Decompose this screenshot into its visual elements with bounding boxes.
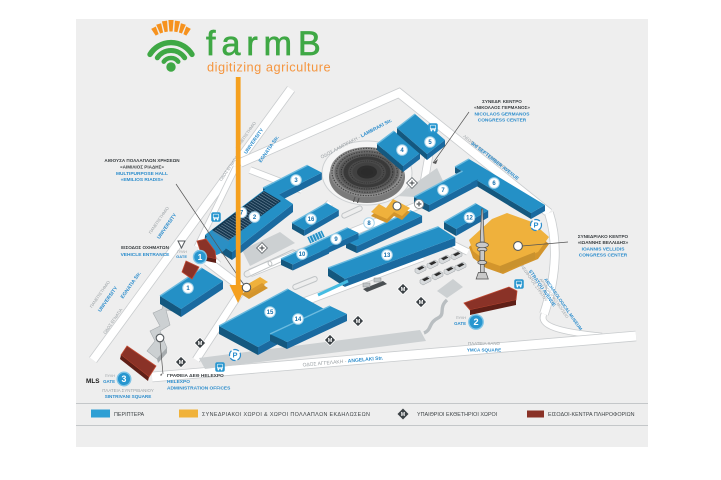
svg-text:15: 15 (267, 310, 274, 316)
svg-text:ADMINISTRATION OFFICES: ADMINISTRATION OFFICES (167, 385, 231, 391)
svg-text:ΠΛΑΤΕΙΑ ΧΑΝΘ: ΠΛΑΤΕΙΑ ΧΑΝΘ (468, 341, 500, 346)
svg-text:ΑΙΘΟΥΣΑ ΠΟΛΛΑΠΛΩΝ ΧΡΗΣΕΩΝ: ΑΙΘΟΥΣΑ ΠΟΛΛΑΠΛΩΝ ΧΡΗΣΕΩΝ (104, 158, 180, 163)
svg-text:12: 12 (466, 216, 473, 222)
svg-text:16: 16 (308, 217, 315, 223)
svg-text:ΠΥΛΗ: ΠΥΛΗ (105, 374, 116, 378)
svg-text:ΣΥΝΕΔΡΙΑΚΟ ΚΕΝΤΡΟ: ΣΥΝΕΔΡΙΑΚΟ ΚΕΝΤΡΟ (578, 234, 629, 239)
svg-text:14: 14 (295, 317, 302, 323)
svg-text:ΓΡΑΦΕΙΑ ΔΕΘ HELEXPO: ΓΡΑΦΕΙΑ ΔΕΘ HELEXPO (167, 373, 224, 379)
svg-text:ΕΙΣΟΔΟΣ ΟΧΗΜΑΤΩΝ: ΕΙΣΟΔΟΣ ΟΧΗΜΑΤΩΝ (121, 245, 169, 250)
svg-text:M: M (328, 338, 333, 344)
svg-text:«ΝΙΚΟΛΑΟΣ ΓΕΡΜΑΝΟΣ»: «ΝΙΚΟΛΑΟΣ ΓΕΡΜΑΝΟΣ» (474, 105, 530, 110)
svg-text:P: P (232, 351, 237, 360)
svg-text:NICOLAOS GERMANOS: NICOLAOS GERMANOS (475, 111, 531, 117)
svg-text:MULTIPURPOSE HALL: MULTIPURPOSE HALL (116, 171, 168, 177)
svg-text:CONGRESS CENTER: CONGRESS CENTER (579, 253, 628, 259)
svg-text:GATE: GATE (454, 321, 466, 326)
svg-text:ΠΛΑΤΕΙΑ ΣΥΝΤΡΙΒΑΝΙΟΥ: ΠΛΑΤΕΙΑ ΣΥΝΤΡΙΒΑΝΙΟΥ (102, 388, 154, 393)
svg-text:2: 2 (473, 317, 478, 327)
svg-text:«ΑΙΜΙΛΙΟΣ ΡΙΑΔΗΣ»: «ΑΙΜΙΛΙΟΣ ΡΙΑΔΗΣ» (120, 164, 164, 169)
svg-text:farmB: farmB (206, 25, 327, 63)
svg-text:13: 13 (384, 253, 391, 259)
svg-text:ΠΕΡΙΠΤΕΡΑ: ΠΕΡΙΠΤΕΡΑ (114, 412, 145, 418)
svg-text:P: P (533, 221, 538, 230)
svg-text:CONGRESS CENTER: CONGRESS CENTER (478, 118, 527, 124)
svg-text:M: M (419, 300, 424, 306)
svg-text:M: M (179, 360, 184, 366)
svg-text:GATE: GATE (176, 254, 187, 259)
svg-text:3: 3 (122, 374, 127, 384)
svg-text:ΙΟΑΝΝΙS VELLIDIS: ΙΟΑΝΝΙS VELLIDIS (582, 246, 626, 252)
svg-text:VEHICLE ENTRANCE: VEHICLE ENTRANCE (121, 252, 171, 258)
svg-text:ΠΥΛΗ: ΠΥΛΗ (456, 316, 467, 320)
svg-text:10: 10 (299, 252, 306, 258)
svg-text:M: M (401, 412, 405, 418)
svg-text:HELEXPO: HELEXPO (167, 379, 190, 385)
svg-text:ΣΥΝΕΔΡΙΑΚΟΙ ΧΩΡΟΙ & ΧΩΡΟΙ ΠΟΛΛ: ΣΥΝΕΔΡΙΑΚΟΙ ΧΩΡΟΙ & ΧΩΡΟΙ ΠΟΛΛΑΠΛΩΝ ΕΚΔΗ… (202, 412, 370, 418)
svg-text:digitizing agriculture: digitizing agriculture (207, 60, 331, 75)
svg-text:ΥΠΑΙΘΡΙΟΙ ΕΚΘΕΤΗΡΙΟΙ ΧΩΡΟΙ: ΥΠΑΙΘΡΙΟΙ ΕΚΘΕΤΗΡΙΟΙ ΧΩΡΟΙ (417, 412, 497, 418)
svg-text:«ΙΩΑΝΝΗΣ ΒΕΛΛΙΔΗΣ»: «ΙΩΑΝΝΗΣ ΒΕΛΛΙΔΗΣ» (578, 240, 629, 245)
svg-text:«EMILIOS RIADIS»: «EMILIOS RIADIS» (121, 177, 164, 183)
svg-text:MLS: MLS (86, 378, 100, 385)
svg-text:M: M (401, 287, 406, 293)
svg-text:ΕΙΣΟΔΟΙ-ΚΕΝΤΡΑ ΠΛΗΡΟΦΟΡΙΩΝ: ΕΙΣΟΔΟΙ-ΚΕΝΤΡΑ ΠΛΗΡΟΦΟΡΙΩΝ (548, 412, 635, 418)
svg-text:GATE: GATE (103, 379, 115, 384)
svg-text:1: 1 (198, 252, 203, 262)
svg-text:M: M (356, 319, 361, 325)
svg-text:M: M (198, 341, 203, 347)
svg-text:SINTRIVANI SQUARE: SINTRIVANI SQUARE (105, 394, 152, 399)
svg-text:YMCA SQUARE: YMCA SQUARE (467, 347, 501, 352)
svg-text:ΣΥΝΕΔΡ. ΚΕΝΤΡΟ: ΣΥΝΕΔΡ. ΚΕΝΤΡΟ (482, 99, 522, 104)
